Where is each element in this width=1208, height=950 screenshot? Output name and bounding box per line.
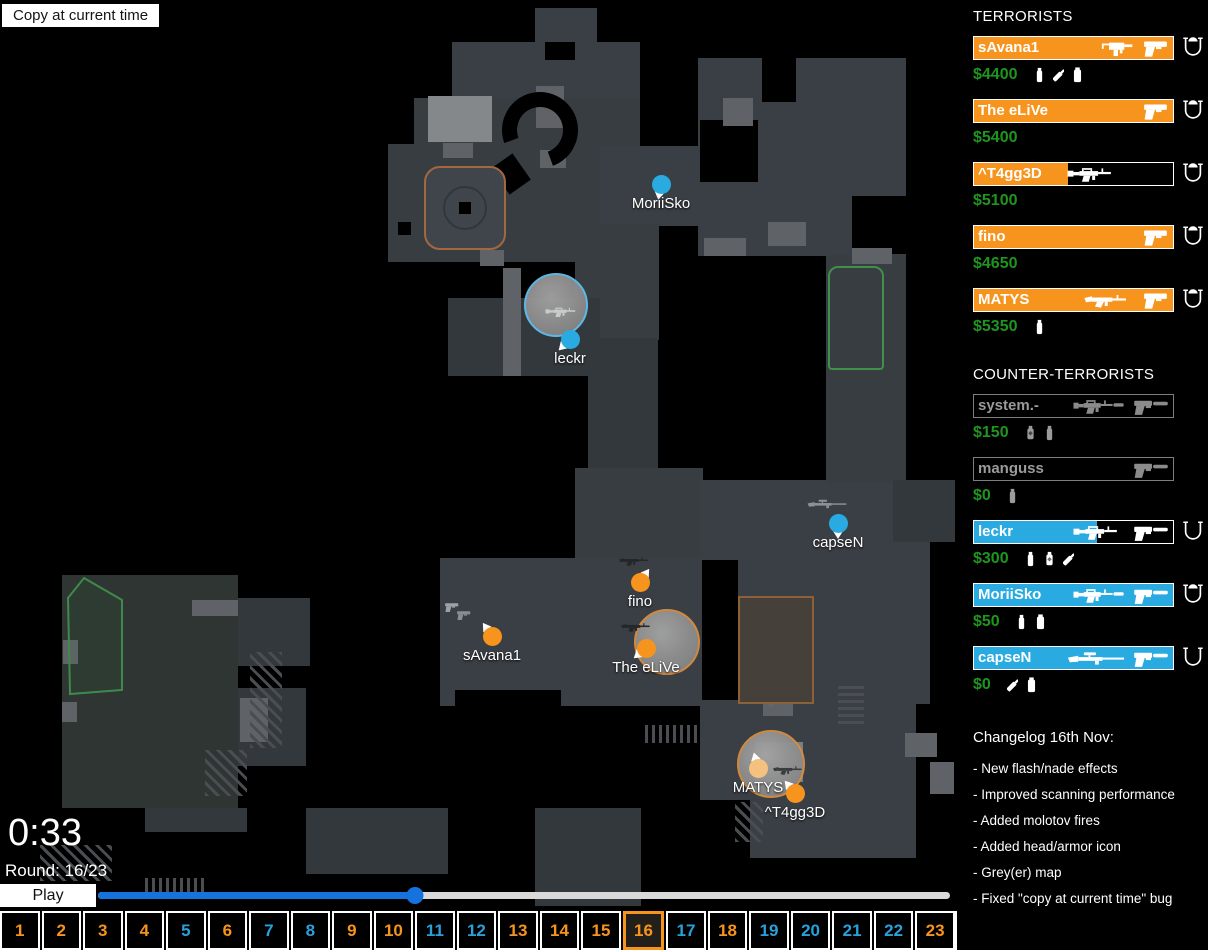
map-geometry: [388, 98, 414, 144]
round-button-8[interactable]: 8: [291, 911, 331, 950]
player-health-bar: The eLiVe: [973, 99, 1174, 123]
player-dot: [483, 627, 502, 646]
player-row: ^T4gg3D: [973, 161, 1202, 187]
player-money: $0: [973, 487, 991, 505]
player-dot: [652, 175, 671, 194]
player-marker-label: leckr: [554, 350, 586, 367]
copy-at-current-time-button[interactable]: Copy at current time: [2, 4, 159, 27]
map-geometry: [852, 248, 892, 264]
player-name: manguss: [978, 458, 1044, 480]
player-money-row: $0: [973, 486, 1202, 506]
rifle-m4-icon: [546, 306, 581, 318]
flashbang-icon: [1034, 67, 1045, 83]
map-geometry: [645, 725, 700, 743]
player-grenades: [1007, 677, 1037, 693]
player-health-bar: fino: [973, 225, 1174, 249]
player-card: capseN $0: [973, 645, 1202, 695]
map-green-outline: [62, 572, 128, 698]
player-row: MoriiSko: [973, 582, 1202, 608]
changelog-items: - New flash/nade effects- Improved scann…: [973, 761, 1202, 906]
map-geometry: [250, 652, 282, 748]
player-dot: [631, 573, 650, 592]
map-geometry: [398, 222, 411, 235]
map-geometry: [768, 222, 806, 246]
rifle-ak47-icon: [1083, 292, 1135, 309]
player-armor: [1181, 393, 1207, 419]
changelog-item: - Added molotov fires: [973, 813, 1202, 828]
round-counter-label: Round: 16/23: [5, 861, 107, 881]
player-card: MoriiSko $50: [973, 582, 1202, 632]
armor-helmet-icon: [1181, 582, 1205, 607]
armor-helmet-icon: [1181, 224, 1205, 249]
map-canvas: MoriiSko leckr capseN fino The eLiVe sAv…: [0, 0, 958, 950]
round-button-10[interactable]: 10: [374, 911, 414, 950]
map-geometry: [62, 702, 77, 722]
rifle-ak47-icon: [621, 621, 656, 633]
dropped-weapon: [546, 306, 581, 318]
player-money: $300: [973, 550, 1009, 568]
player-name: fino: [978, 226, 1006, 248]
molotov-icon: [1053, 67, 1064, 83]
player-row: MATYS: [973, 287, 1202, 313]
player-card: MATYS $5350: [973, 287, 1202, 337]
player-health-bar: sAvana1: [973, 36, 1174, 60]
map-geometry: [700, 120, 758, 182]
armor-icon: [1181, 519, 1205, 544]
scoreboard-sidebar: TERRORISTS sAvana1 $4400 The eLiVe: [958, 0, 1208, 950]
player-armor: [1181, 456, 1207, 482]
sniper-scout-icon: [807, 498, 847, 511]
map-geometry: [575, 468, 703, 562]
dropped-weapon: [621, 621, 656, 633]
map-geometry: [503, 268, 521, 376]
slider-fill: [98, 892, 415, 899]
play-button[interactable]: Play: [0, 884, 96, 907]
player-row: fino: [973, 224, 1202, 250]
player-grenades: [1034, 319, 1045, 335]
player-grenades: [1025, 425, 1055, 441]
round-button-5[interactable]: 5: [166, 911, 206, 950]
rifle-m4s-icon: [1073, 398, 1125, 415]
round-button-15[interactable]: 15: [581, 911, 621, 950]
player-marker-label: MoriiSko: [632, 195, 690, 212]
changelog-title: Changelog 16th Nov:: [973, 729, 1202, 746]
player-money: $5400: [973, 129, 1018, 147]
map-geometry: [930, 762, 954, 794]
player-row: sAvana1: [973, 35, 1202, 61]
player-name: MATYS: [978, 289, 1029, 311]
map-geometry: [428, 96, 492, 142]
map-bombsite-zone: [738, 596, 814, 704]
player-weapons: [1143, 226, 1169, 248]
molotov-icon: [1063, 551, 1074, 567]
pistol-glock-icon: [1143, 100, 1169, 122]
player-weapons: [1073, 395, 1169, 417]
dropped-weapon: [619, 555, 654, 567]
round-button-9[interactable]: 9: [332, 911, 372, 950]
map-geometry: [893, 480, 955, 542]
player-grenades: [1016, 614, 1046, 630]
player-card: The eLiVe $5400: [973, 98, 1202, 148]
changelog-item: - Grey(er) map: [973, 865, 1202, 880]
counter-terrorists-title: COUNTER-TERRORISTS: [973, 366, 1202, 383]
armor-icon: [1181, 645, 1205, 670]
player-money: $5100: [973, 192, 1018, 210]
player-card: fino $4650: [973, 224, 1202, 274]
player-row: system.-: [973, 393, 1202, 419]
player-weapons: [1133, 458, 1169, 480]
player-marker-label: capseN: [813, 534, 864, 551]
player-marker-label: MATYS: [733, 779, 784, 796]
he-icon: [1044, 551, 1055, 567]
rifle-ak47-icon: [773, 764, 808, 776]
player-money: $0: [973, 676, 991, 694]
round-button-7[interactable]: 7: [249, 911, 289, 950]
player-row: The eLiVe: [973, 98, 1202, 124]
player-armor: [1181, 645, 1207, 671]
round-button-22[interactable]: 22: [874, 911, 914, 950]
player-name: system.-: [978, 395, 1039, 417]
pistol-usp-icon: [1133, 585, 1169, 606]
round-timeline: 1234567891011121314151617181920212223: [0, 911, 957, 950]
player-weapons: [1101, 37, 1169, 59]
round-button-3[interactable]: 3: [83, 911, 123, 950]
molotov-icon: [1007, 677, 1018, 693]
he-icon: [1025, 425, 1036, 441]
smoke-cloud: [524, 273, 588, 337]
round-button-12[interactable]: 12: [457, 911, 497, 950]
map-geometry: [735, 802, 763, 842]
player-name: leckr: [978, 521, 1013, 543]
player-money-row: $50: [973, 612, 1202, 632]
map-geometry: [205, 750, 247, 796]
player-money-row: $4400: [973, 65, 1202, 85]
rifle-m4-icon: [1067, 166, 1119, 183]
sniper-scout-icon: [1067, 649, 1125, 668]
terrorists-list: sAvana1 $4400 The eLiVe: [973, 35, 1202, 337]
rifle-m4-icon: [1073, 524, 1125, 541]
player-row: capseN: [973, 645, 1202, 671]
player-health-bar: ^T4gg3D: [973, 162, 1174, 186]
map-geometry: [762, 58, 796, 102]
dropped-weapon: [807, 498, 847, 511]
player-weapons: [1067, 647, 1169, 669]
round-button-6[interactable]: 6: [208, 911, 248, 950]
pistol-glock-icon: [1143, 37, 1169, 59]
player-weapons: [1073, 584, 1169, 606]
round-button-18[interactable]: 18: [708, 911, 748, 950]
player-card: sAvana1 $4400: [973, 35, 1202, 85]
player-health-bar: manguss: [973, 457, 1174, 481]
flashbang-icon: [1016, 614, 1027, 630]
round-button-21[interactable]: 21: [832, 911, 872, 950]
player-dot: [637, 639, 656, 658]
changelog-item: - New flash/nade effects: [973, 761, 1202, 776]
player-name: The eLiVe: [978, 100, 1048, 122]
player-dot: [786, 784, 805, 803]
player-dot: [561, 330, 580, 349]
player-dot: [749, 759, 768, 778]
player-money: $50: [973, 613, 1000, 631]
smg-mac10-icon: [1101, 39, 1135, 57]
map-geometry: [306, 808, 448, 874]
player-marker-label: ^T4gg3D: [765, 804, 825, 821]
round-button-13[interactable]: 13: [498, 911, 538, 950]
smoke-icon: [1072, 67, 1083, 83]
player-dot: [829, 514, 848, 533]
smoke-icon: [1035, 614, 1046, 630]
player-card: leckr $300: [973, 519, 1202, 569]
playback-slider[interactable]: [98, 886, 950, 905]
pistol-glock-icon: [457, 609, 472, 622]
rifle-m4s-icon: [1073, 587, 1125, 604]
round-button-4[interactable]: 4: [125, 911, 165, 950]
round-button-14[interactable]: 14: [540, 911, 580, 950]
armor-helmet-icon: [1181, 161, 1205, 186]
player-row: manguss: [973, 456, 1202, 482]
map-green-zone: [828, 266, 884, 370]
slider-handle[interactable]: [406, 887, 423, 904]
map-geometry: [480, 250, 504, 266]
player-health-bar: MATYS: [973, 288, 1174, 312]
flashbang-icon: [1007, 488, 1018, 504]
player-card: system.- $150: [973, 393, 1202, 443]
round-button-20[interactable]: 20: [791, 911, 831, 950]
player-money-row: $5400: [973, 128, 1202, 148]
map-geometry: [545, 42, 575, 60]
pistol-usp-icon: [1133, 522, 1169, 543]
player-health-bar: capseN: [973, 646, 1174, 670]
armor-helmet-icon: [1181, 98, 1205, 123]
player-card: ^T4gg3D $5100: [973, 161, 1202, 211]
map-geometry: [838, 686, 864, 726]
player-money-row: $4650: [973, 254, 1202, 274]
player-name: sAvana1: [978, 37, 1039, 59]
player-grenades: [1007, 488, 1018, 504]
player-money-row: $150: [973, 423, 1202, 443]
dropped-weapon: [457, 609, 472, 622]
pistol-usp-icon: [1133, 396, 1169, 417]
player-money-row: $5100: [973, 191, 1202, 211]
player-name: capseN: [978, 647, 1031, 669]
map-geometry: [723, 98, 753, 126]
player-money: $5350: [973, 318, 1018, 336]
player-grenades: [1034, 67, 1083, 83]
round-button-19[interactable]: 19: [749, 911, 789, 950]
terrorists-title: TERRORISTS: [973, 8, 1202, 25]
map-geometry: [905, 733, 937, 757]
player-money: $150: [973, 424, 1009, 442]
smoke-icon: [1026, 677, 1037, 693]
flashbang-icon: [1034, 319, 1045, 335]
player-health-bar: MoriiSko: [973, 583, 1174, 607]
rifle-ak47-icon: [619, 555, 654, 567]
pistol-glock-icon: [1143, 289, 1169, 311]
map-geometry: [852, 196, 906, 254]
player-money: $4400: [973, 66, 1018, 84]
map-geometry: [704, 238, 746, 256]
dropped-weapon: [773, 764, 808, 776]
player-name: ^T4gg3D: [978, 163, 1042, 185]
map-geometry: [443, 143, 473, 158]
player-armor: [1181, 35, 1207, 61]
changelog-item: - Improved scanning performance: [973, 787, 1202, 802]
changelog-item: - Added head/armor icon: [973, 839, 1202, 854]
map-courtyard-zone: [424, 166, 506, 250]
player-weapons: [1143, 100, 1169, 122]
player-armor: [1181, 519, 1207, 545]
player-weapons: [1073, 521, 1169, 543]
player-money-row: $0: [973, 675, 1202, 695]
changelog: Changelog 16th Nov: - New flash/nade eff…: [973, 729, 1202, 906]
round-clock: 0:33: [8, 812, 82, 855]
player-marker-label: sAvana1: [463, 647, 521, 664]
round-button-11[interactable]: 11: [415, 911, 455, 950]
map-geometry: [145, 808, 247, 832]
map-geometry: [455, 690, 561, 790]
flashbang-icon: [1025, 551, 1036, 567]
armor-helmet-icon: [1181, 287, 1205, 312]
round-button-23[interactable]: 23: [915, 911, 955, 950]
pistol-glock-icon: [1143, 226, 1169, 248]
player-marker-label: The eLiVe: [612, 659, 680, 676]
player-health-bar: system.-: [973, 394, 1174, 418]
player-armor: [1181, 224, 1207, 250]
round-button-1[interactable]: 1: [0, 911, 40, 950]
map-geometry: [702, 560, 738, 700]
round-button-16[interactable]: 16: [623, 911, 665, 950]
player-grenades: [1025, 551, 1074, 567]
counter-terrorists-list: system.- $150 manguss $0: [973, 393, 1202, 695]
player-armor: [1181, 582, 1207, 608]
player-armor: [1181, 98, 1207, 124]
player-money-row: $5350: [973, 317, 1202, 337]
player-weapons: [1067, 163, 1119, 185]
player-row: leckr: [973, 519, 1202, 545]
player-money-row: $300: [973, 549, 1202, 569]
map-geometry: [192, 600, 238, 616]
player-name: MoriiSko: [978, 584, 1041, 606]
flashbang-icon: [1044, 425, 1055, 441]
player-health-bar: leckr: [973, 520, 1174, 544]
pistol-usp-icon: [1133, 648, 1169, 669]
player-weapons: [1083, 289, 1169, 311]
pistol-usp-icon: [1133, 459, 1169, 480]
player-money: $4650: [973, 255, 1018, 273]
player-armor: [1181, 161, 1207, 187]
round-button-2[interactable]: 2: [42, 911, 82, 950]
armor-helmet-icon: [1181, 35, 1205, 60]
player-card: manguss $0: [973, 456, 1202, 506]
changelog-item: - Fixed "copy at current time" bug: [973, 891, 1202, 906]
map-geometry: [588, 338, 658, 480]
player-armor: [1181, 287, 1207, 313]
round-button-17[interactable]: 17: [666, 911, 706, 950]
player-marker-label: fino: [628, 593, 652, 610]
